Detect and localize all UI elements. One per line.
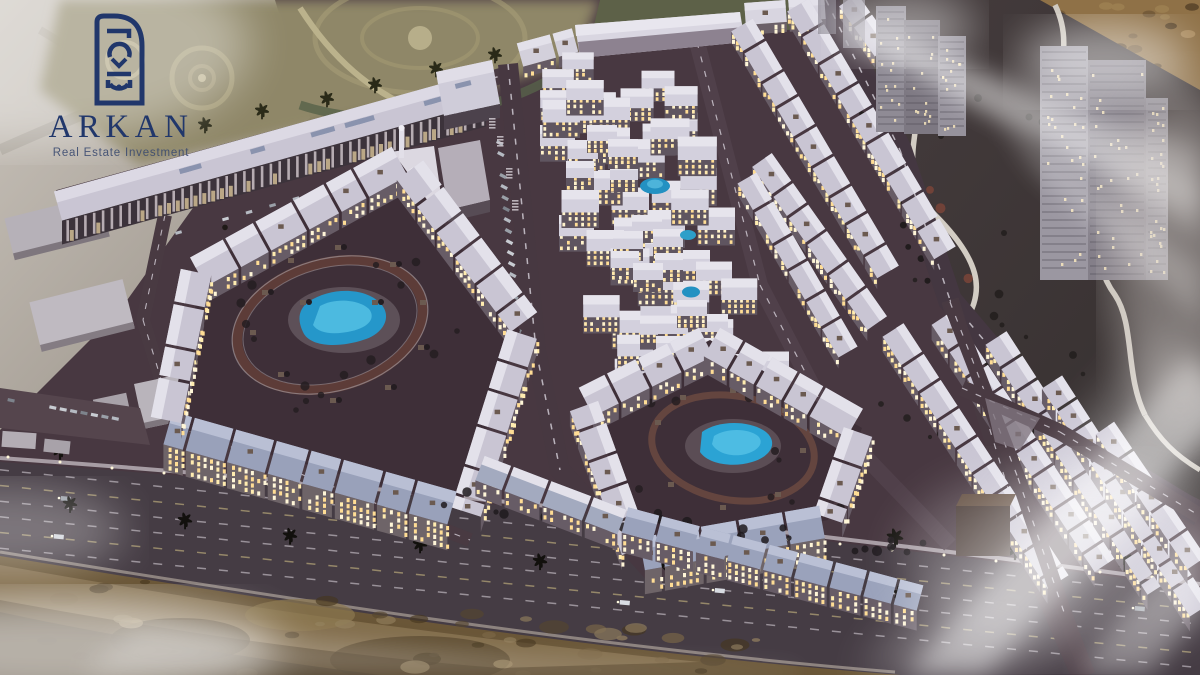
svg-text:ARKAN: ARKAN	[49, 109, 194, 145]
svg-text:Real Estate Investment: Real Estate Investment	[53, 147, 190, 159]
